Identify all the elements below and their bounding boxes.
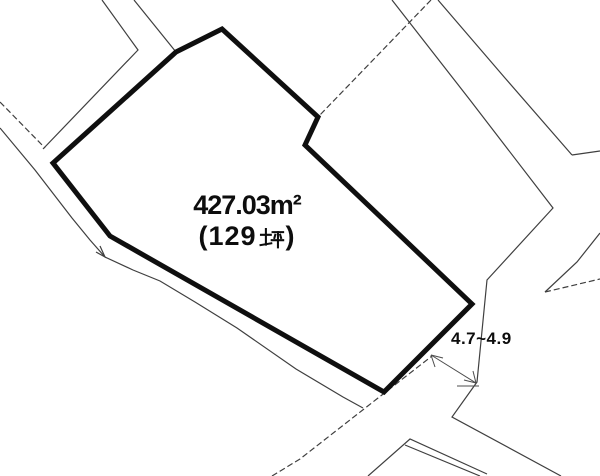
dimension-arrow: [431, 355, 479, 386]
tsubo-kanji-icon: [260, 225, 285, 250]
road-edge-west-upper: [0, 102, 45, 148]
parcel-line-east-upper: [545, 233, 600, 292]
area-label: 427.03m²: [193, 191, 301, 219]
dimension-label: 4.7~4.9: [451, 329, 512, 349]
road-branch-east: [572, 151, 600, 155]
tsubo-prefix: (129: [198, 222, 256, 250]
road-fork-south-parallel: [405, 445, 480, 476]
parcel-labels: 427.03m² (129 ): [193, 191, 301, 250]
road-edge-center-right: [438, 0, 572, 155]
tsubo-label: (129 ): [193, 222, 301, 250]
road-edge-north-diagonal: [318, 0, 431, 117]
road-fork-south: [368, 439, 487, 476]
road-edge-center-left: [392, 0, 561, 476]
road-edge-top-left-inner: [134, 0, 176, 52]
boundary-southwest: [0, 128, 363, 408]
parcel-line-east-lower: [545, 279, 600, 292]
land-plot-diagram: 427.03m² (129 ) 4.7~4.9: [0, 0, 600, 476]
tsubo-suffix: ): [286, 222, 296, 250]
